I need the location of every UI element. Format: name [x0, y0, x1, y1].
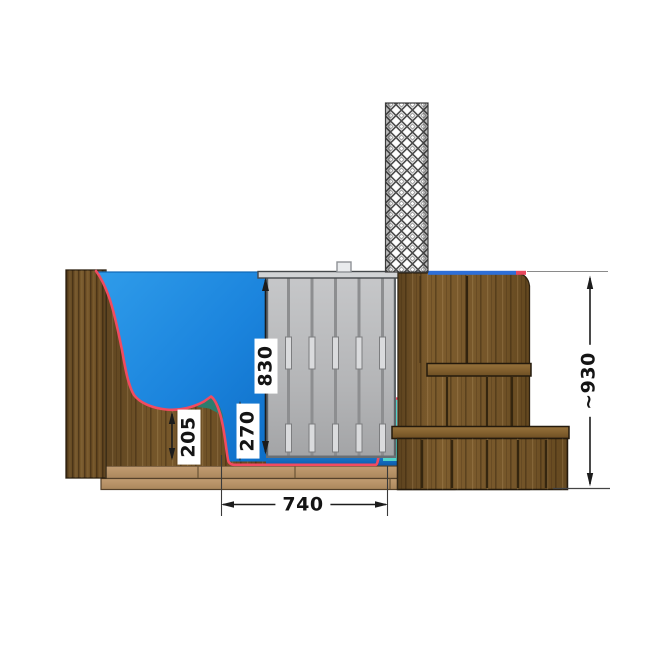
dimension-label-heater-width: 740 — [275, 494, 330, 517]
lower-step-front — [398, 439, 568, 490]
dimension-label-inner-depth: 830 — [255, 338, 278, 393]
heater-lid-knob — [337, 262, 351, 272]
dimension-label-seat-height: 205 — [178, 409, 201, 464]
rim-liner-blue — [428, 271, 516, 275]
dimension-label-overall-height: ~930 — [578, 345, 601, 417]
heater-lid — [258, 272, 400, 279]
dimension-label-footwell-depth: 270 — [237, 403, 260, 458]
lower-step-board — [392, 427, 569, 439]
upper-step-board — [427, 364, 531, 377]
chimney — [386, 103, 429, 272]
diagram-canvas — [0, 0, 648, 648]
rim-liner-red — [516, 271, 526, 275]
hot-tub-cross-section-diagram: 830 270 205 740 ~930 — [0, 0, 648, 648]
heater — [258, 262, 400, 458]
